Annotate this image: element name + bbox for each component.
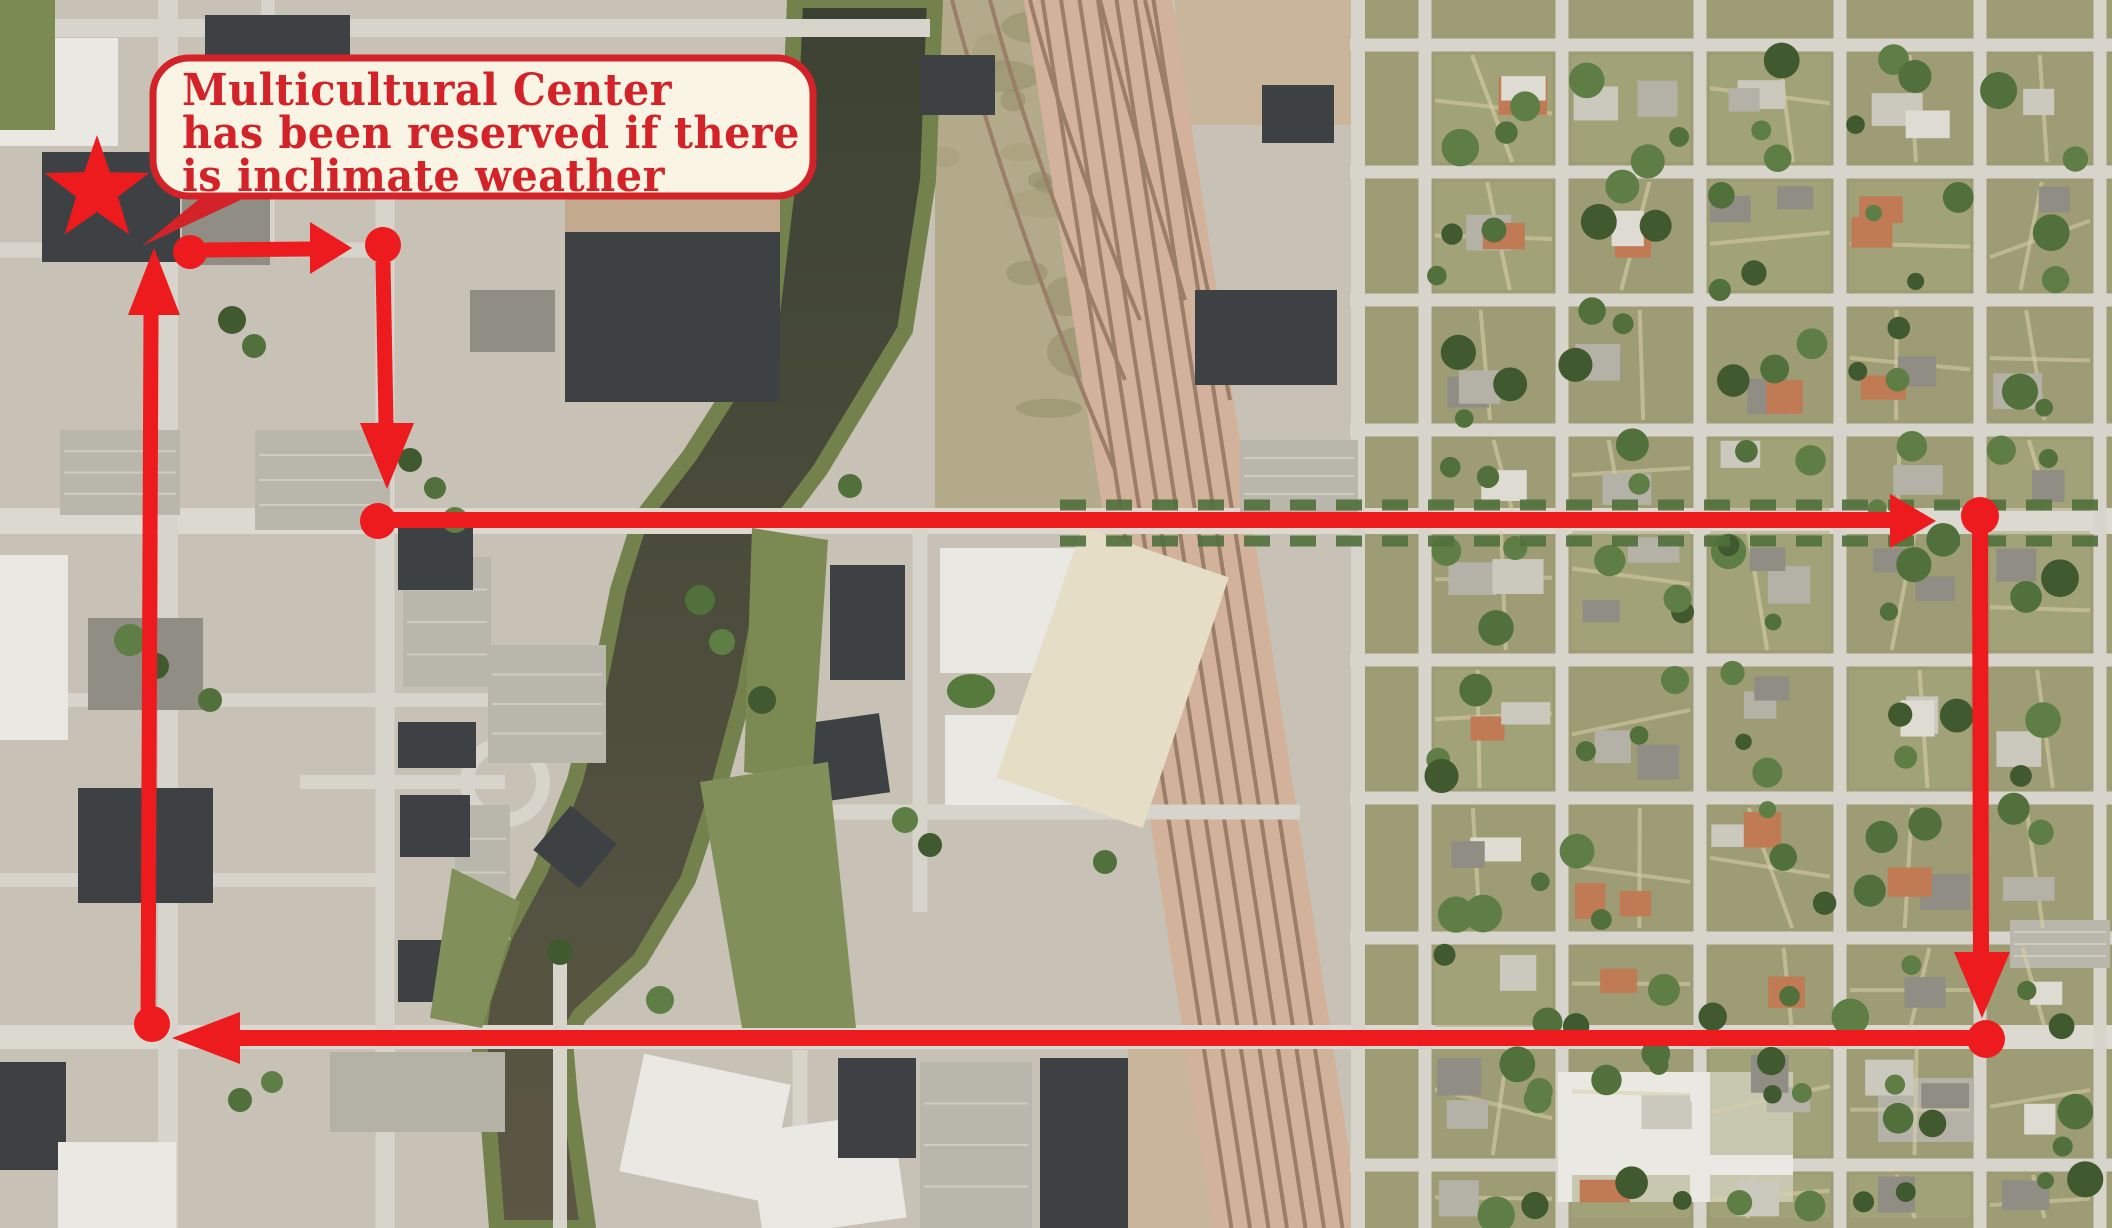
route-waypoint-dot: [134, 1006, 170, 1042]
route-segment: [205, 249, 314, 250]
route-segment: [1980, 530, 1981, 954]
route-waypoint-dot: [173, 235, 207, 269]
route-waypoint-dot: [1961, 497, 1999, 535]
annotated-aerial-map: Multicultural Center has been reserved i…: [0, 0, 2112, 1228]
route-waypoint-dot: [1967, 1020, 2005, 1058]
aerial-map-canvas: Multicultural Center has been reserved i…: [0, 0, 2112, 1228]
callout-line-3: is inclimate weather: [182, 151, 665, 202]
route-segment: [148, 313, 151, 1022]
route-segment: [383, 262, 386, 424]
route-waypoint-dot: [365, 227, 401, 263]
route-waypoint-dot: [360, 503, 396, 539]
